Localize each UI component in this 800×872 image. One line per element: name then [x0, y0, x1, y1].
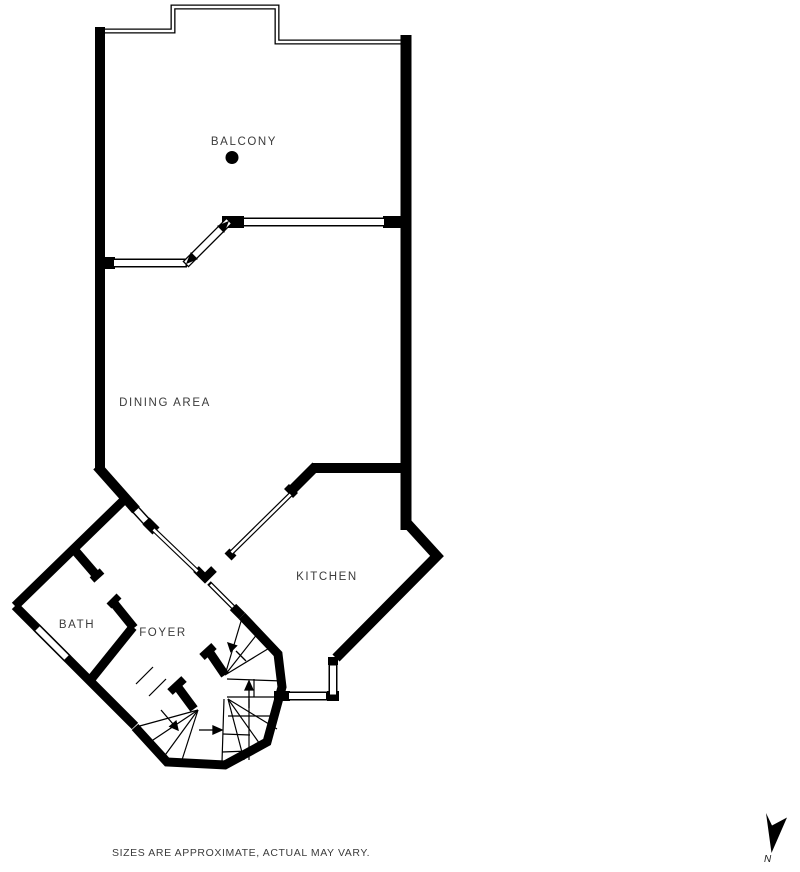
wall-openings: [152, 493, 292, 610]
room-label-dining-area: DINING AREA: [119, 397, 211, 409]
balcony-railing: [103, 7, 406, 42]
room-label-bath: BATH: [59, 619, 95, 631]
floor-plan: BALCONY DINING AREA KITCHEN FOYER BATH S…: [0, 0, 800, 872]
north-arrow-icon: [766, 813, 787, 853]
balcony-dot: [226, 151, 239, 164]
room-label-foyer: FOYER: [139, 627, 187, 639]
disclaimer-text: SIZES ARE APPROXIMATE, ACTUAL MAY VARY.: [112, 847, 370, 859]
floor-plan-drawing: [0, 0, 800, 872]
interior-walls: [72, 547, 234, 683]
room-label-balcony: BALCONY: [211, 136, 277, 148]
north-label: N: [764, 854, 771, 865]
balcony-door: [182, 217, 232, 267]
room-label-kitchen: KITCHEN: [296, 571, 358, 583]
